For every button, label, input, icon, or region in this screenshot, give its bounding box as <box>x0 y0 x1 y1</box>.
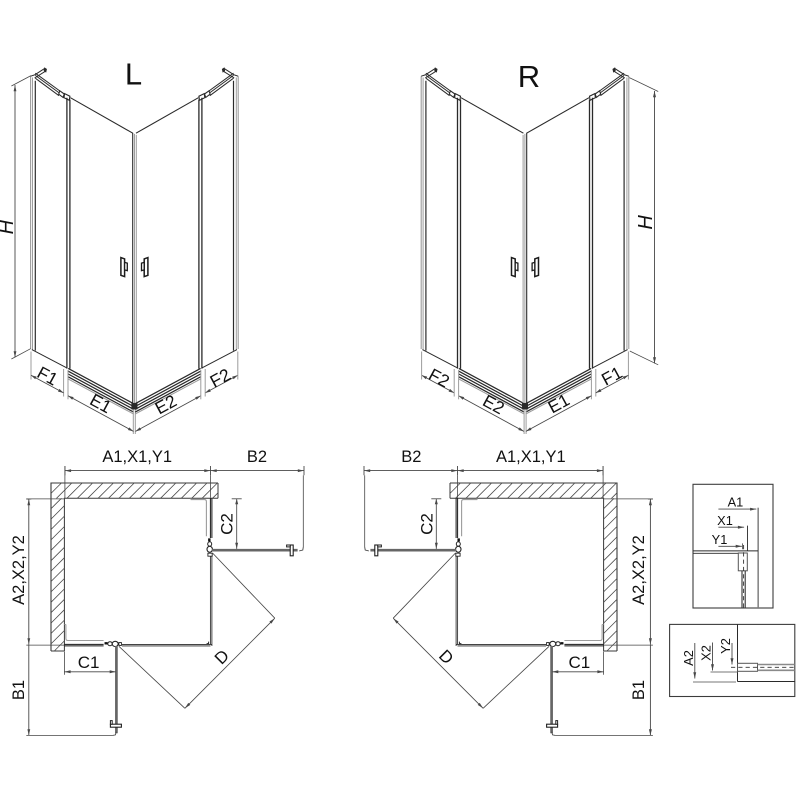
svg-text:A2: A2 <box>681 650 696 666</box>
svg-text:L: L <box>125 57 142 92</box>
svg-text:H: H <box>635 215 657 230</box>
svg-text:C2: C2 <box>218 513 237 535</box>
svg-text:A1: A1 <box>728 495 744 510</box>
svg-text:A2,X2,Y2: A2,X2,Y2 <box>630 535 648 605</box>
svg-text:H: H <box>0 219 18 234</box>
svg-text:R: R <box>518 59 540 94</box>
svg-text:C2: C2 <box>417 513 436 535</box>
svg-text:B2: B2 <box>401 448 421 466</box>
svg-text:Y2: Y2 <box>718 638 733 654</box>
svg-text:C1: C1 <box>78 653 100 672</box>
svg-text:Y1: Y1 <box>712 532 728 547</box>
svg-text:B1: B1 <box>630 680 648 700</box>
svg-text:X1: X1 <box>717 513 733 528</box>
svg-text:A1,X1,Y1: A1,X1,Y1 <box>496 448 566 466</box>
svg-text:B2: B2 <box>247 448 267 466</box>
svg-text:A2,X2,Y2: A2,X2,Y2 <box>10 535 28 605</box>
svg-text:A1,X1,Y1: A1,X1,Y1 <box>102 448 172 466</box>
svg-text:X2: X2 <box>699 645 714 661</box>
svg-text:B1: B1 <box>10 680 28 700</box>
svg-text:C1: C1 <box>569 653 591 672</box>
